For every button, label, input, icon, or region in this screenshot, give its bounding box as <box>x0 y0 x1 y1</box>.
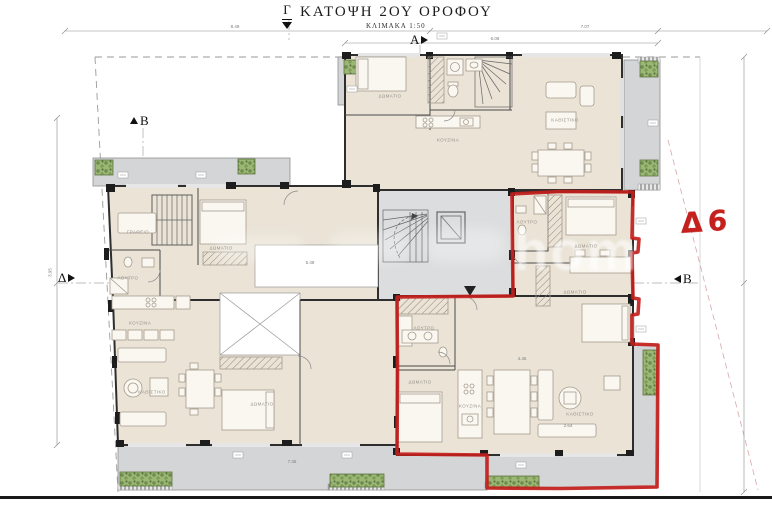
floor-plan-page: Γ ΚΑΤΟΨΗ 2ΟΥ ΟΡΟΦΟΥ ΚΛΙΜΑΚΑ 1:50 Α Β Δ Β… <box>0 0 772 507</box>
bottom-border-line <box>0 496 772 499</box>
planter <box>120 472 172 486</box>
planter <box>640 61 658 77</box>
planter <box>487 476 539 488</box>
common-hall <box>378 190 513 300</box>
planter <box>643 350 657 395</box>
floor-plan-drawing <box>0 0 772 507</box>
planter <box>95 160 113 175</box>
planter <box>238 159 255 174</box>
planter <box>330 474 384 487</box>
planter <box>640 160 658 176</box>
